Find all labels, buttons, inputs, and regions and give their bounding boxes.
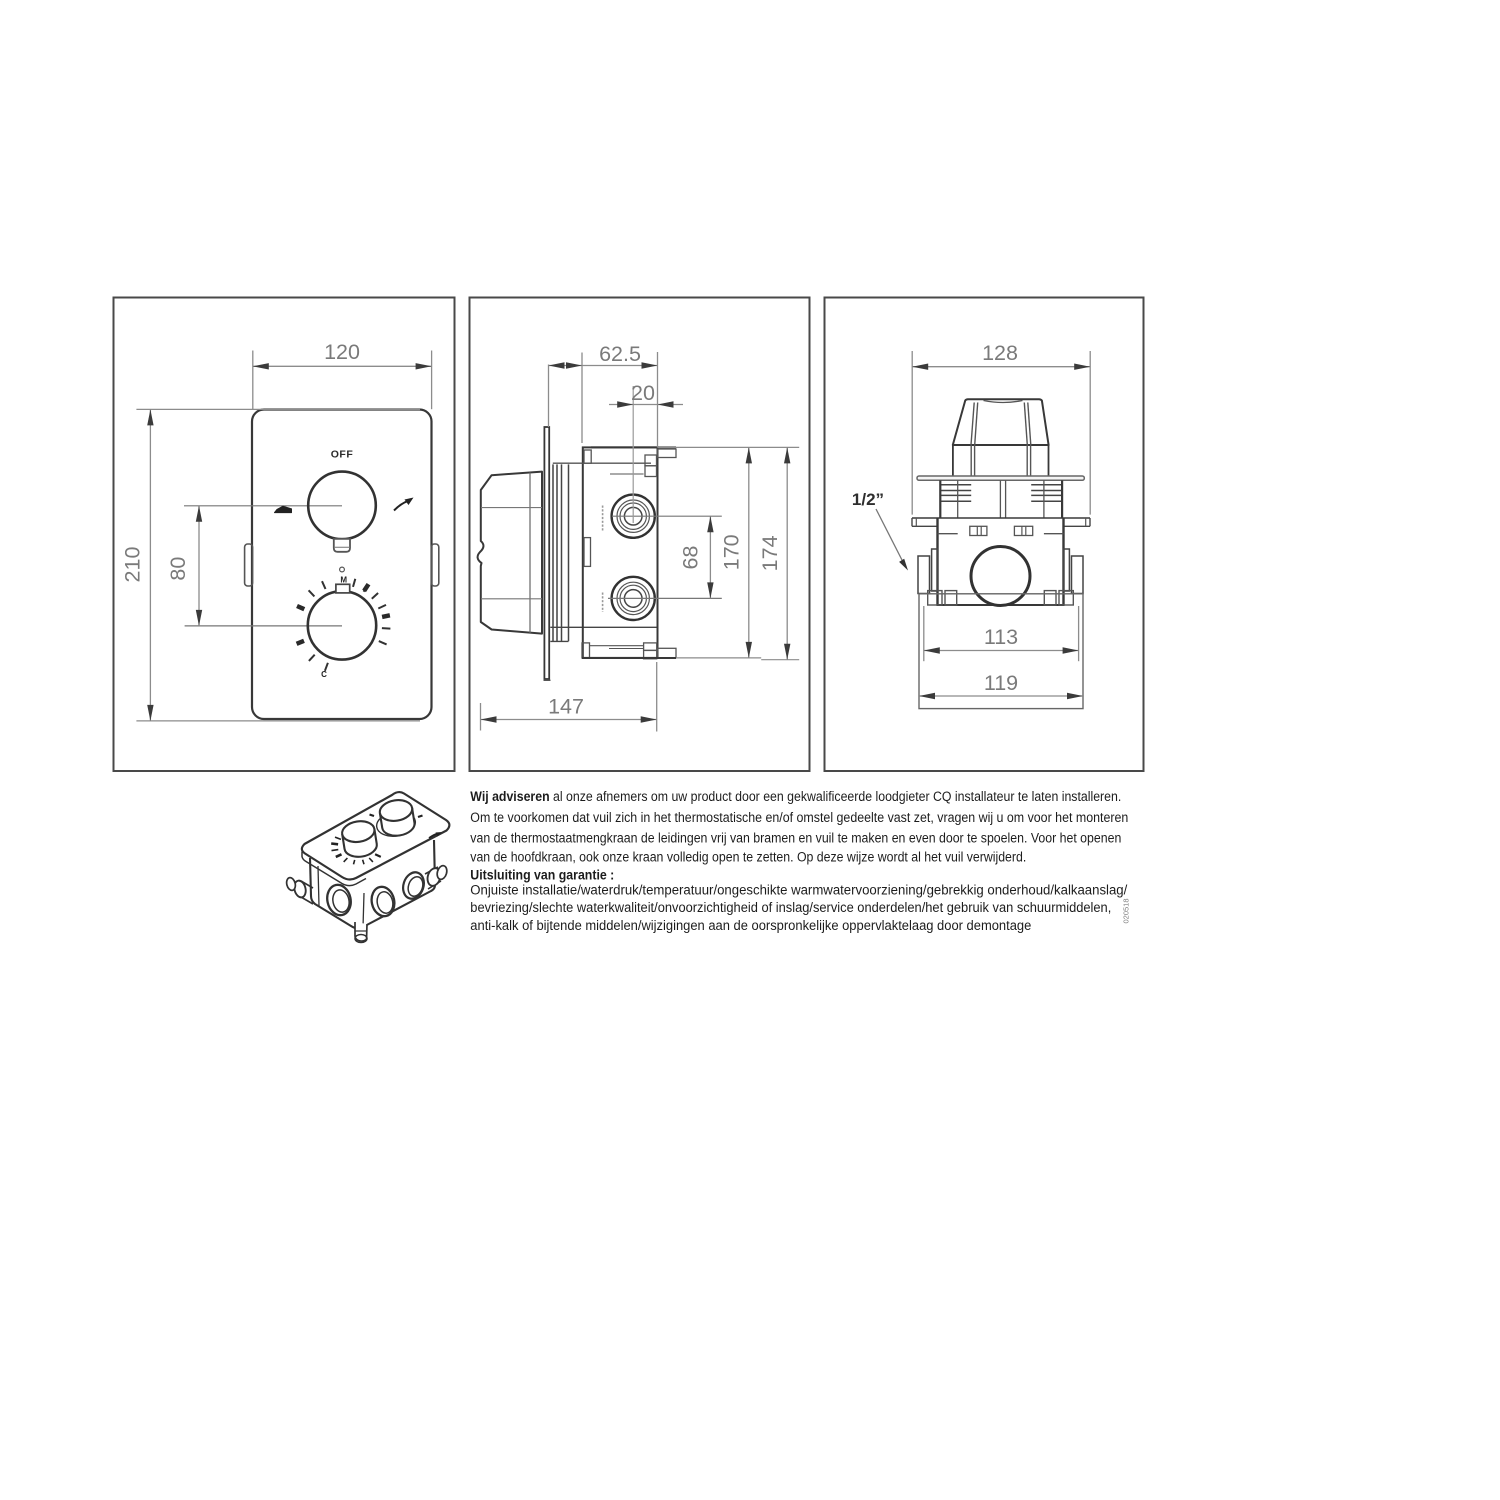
svg-text:120: 120 [324, 340, 360, 364]
svg-text:170: 170 [719, 534, 743, 570]
svg-text:020518: 020518 [1122, 898, 1131, 923]
svg-text:20: 20 [631, 381, 655, 405]
svg-text:80: 80 [166, 557, 190, 581]
svg-text:128: 128 [982, 341, 1018, 365]
svg-text:Wij adviseren al onze afnemers: Wij adviseren al onze afnemers om uw pro… [470, 789, 1121, 804]
svg-text:Onjuiste installatie/waterdruk: Onjuiste installatie/waterdruk/temperatu… [470, 882, 1127, 897]
svg-text:Om te voorkomen dat vuil zich: Om te voorkomen dat vuil zich in het the… [470, 810, 1128, 825]
svg-text:Uitsluiting van garantie :: Uitsluiting van garantie : [470, 867, 614, 882]
svg-text:68: 68 [679, 546, 703, 570]
svg-text:bevriezing/slechte waterkwalit: bevriezing/slechte waterkwaliteit/onvoor… [470, 900, 1111, 915]
svg-text:174: 174 [758, 535, 782, 571]
svg-text:anti-kalk of bijtende middelen: anti-kalk of bijtende middelen/wijziging… [470, 918, 1031, 933]
svg-text:OFF: OFF [331, 449, 354, 461]
svg-text:1/2”: 1/2” [852, 490, 884, 509]
svg-text:119: 119 [984, 671, 1018, 695]
svg-text:147: 147 [548, 695, 584, 719]
svg-text:113: 113 [984, 625, 1018, 649]
svg-text:van de thermostaatmengkraan d: van de thermostaatmengkraan de leidingen… [470, 830, 1121, 845]
svg-text:62.5: 62.5 [599, 342, 641, 366]
svg-text:C: C [321, 670, 327, 679]
svg-text:van de hoofdkraan, ook onze kr: van de hoofdkraan, ook onze kraan volled… [470, 849, 1026, 864]
svg-text:M: M [340, 576, 347, 585]
svg-text:210: 210 [121, 547, 145, 583]
